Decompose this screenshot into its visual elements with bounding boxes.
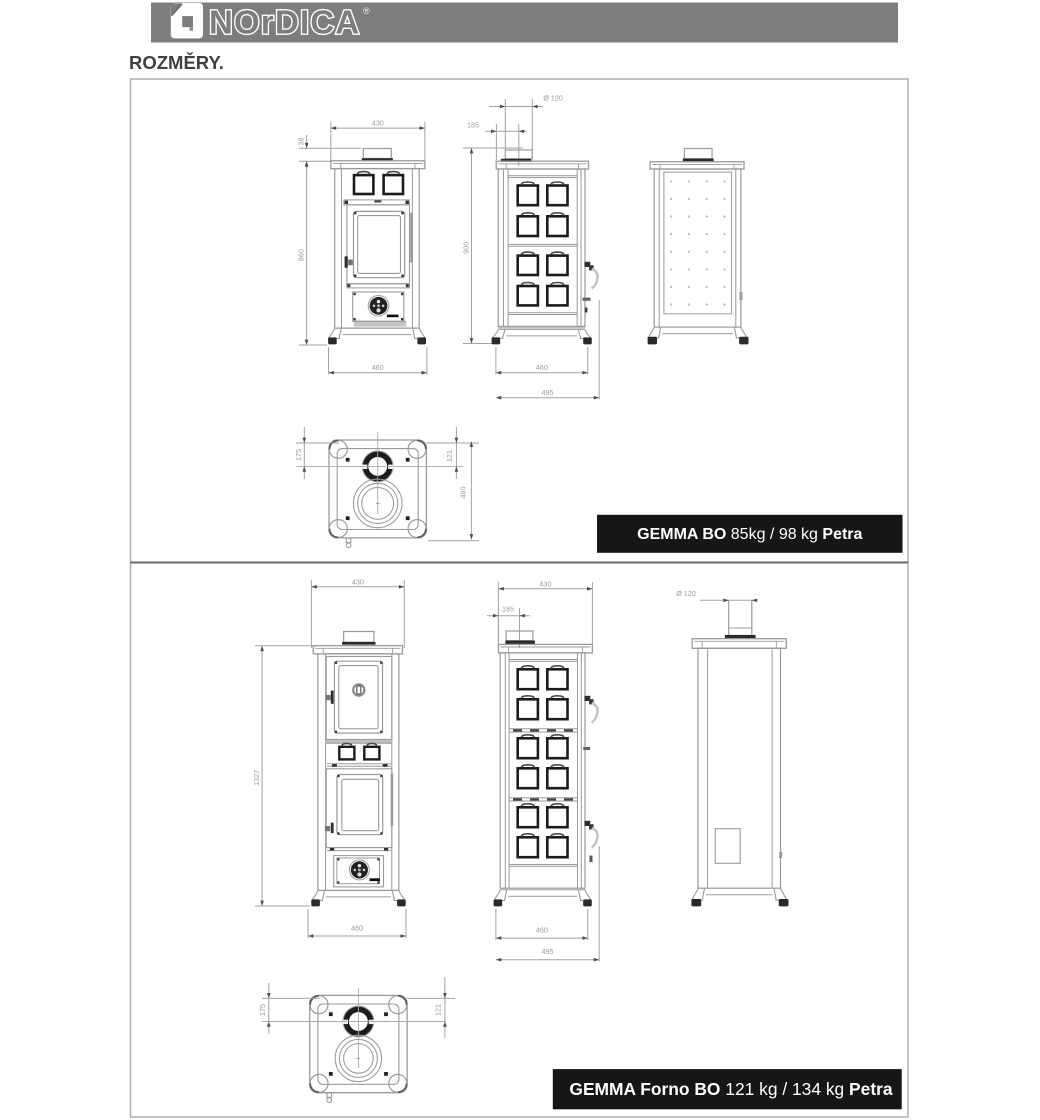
svg-text:121: 121 (445, 450, 454, 462)
svg-text:430: 430 (372, 119, 384, 128)
svg-text:185: 185 (467, 121, 479, 130)
svg-text:430: 430 (352, 577, 364, 586)
svg-text:495: 495 (542, 388, 554, 397)
svg-text:1327: 1327 (252, 770, 261, 786)
svg-text:GEMMA BO 85kg / 98 kg Petra: GEMMA BO 85kg / 98 kg Petra (637, 526, 862, 543)
svg-text:175: 175 (258, 1004, 267, 1016)
svg-text:GEMMA Forno BO 121 kg / 134 kg: GEMMA Forno BO 121 kg / 134 kg Petra (569, 1079, 892, 1099)
svg-text:185: 185 (502, 605, 514, 614)
svg-text:121: 121 (433, 1004, 442, 1016)
svg-text:460: 460 (459, 487, 468, 499)
svg-text:175: 175 (294, 449, 303, 461)
svg-text:430: 430 (539, 579, 551, 588)
svg-text:460: 460 (536, 926, 548, 935)
svg-text:ROZMĚRY.: ROZMĚRY. (129, 52, 224, 73)
svg-text:460: 460 (372, 363, 384, 372)
svg-text:®: ® (363, 6, 370, 16)
svg-text:Ø 120: Ø 120 (676, 589, 696, 598)
svg-text:860: 860 (297, 249, 306, 261)
svg-text:495: 495 (542, 947, 554, 956)
svg-text:460: 460 (351, 924, 363, 933)
svg-text:38: 38 (296, 138, 305, 146)
svg-text:NOrDICA: NOrDICA (209, 4, 360, 41)
svg-text:460: 460 (536, 363, 548, 372)
svg-text:900: 900 (462, 242, 471, 254)
svg-text:Ø 120: Ø 120 (543, 94, 563, 103)
